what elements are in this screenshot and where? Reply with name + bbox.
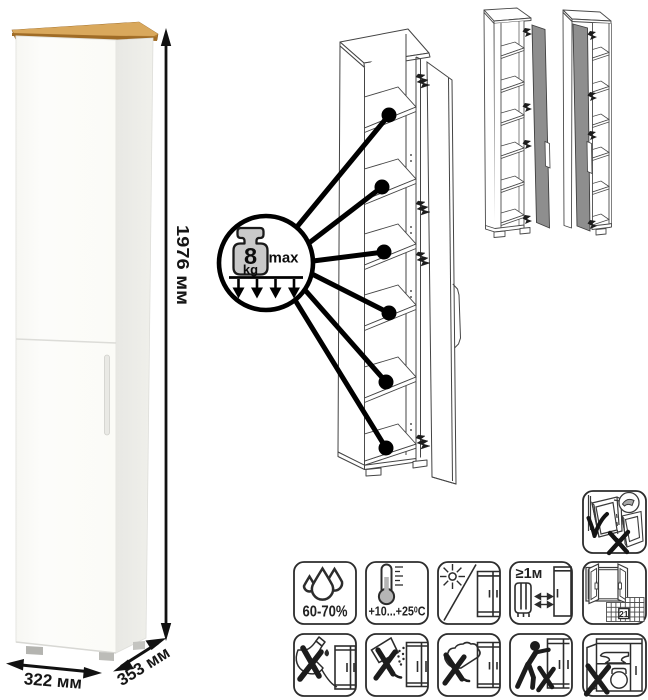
svg-text:+10...+250C: +10...+250C [369, 605, 426, 619]
svg-text:max: max [268, 250, 299, 267]
svg-text:1976 мм: 1976 мм [173, 225, 193, 305]
svg-text:kg: kg [243, 262, 258, 277]
svg-text:21: 21 [619, 609, 629, 619]
svg-text:60-70%: 60-70% [303, 604, 348, 621]
svg-text:≥1м: ≥1м [516, 566, 543, 582]
